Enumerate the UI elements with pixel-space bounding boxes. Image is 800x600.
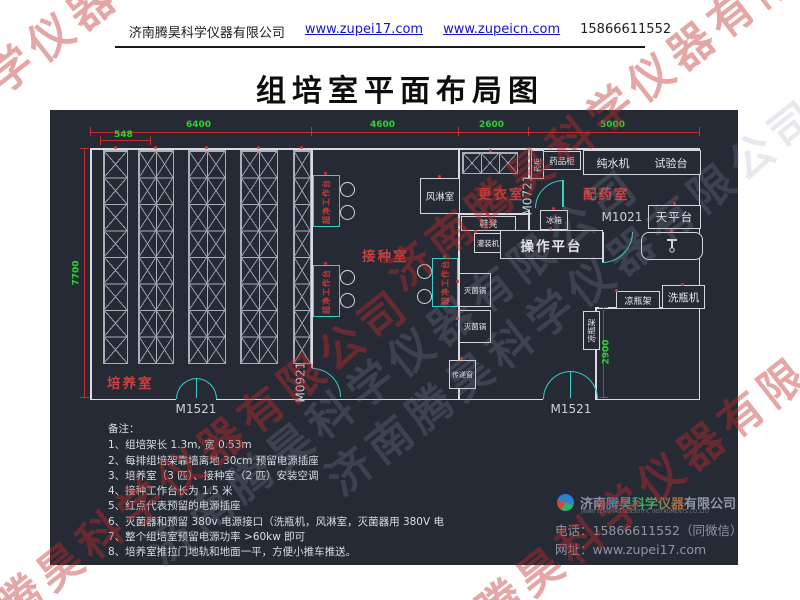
page-title: 组培室平面布局图 (0, 66, 800, 110)
door-code-m1521-right: M1521 (547, 402, 595, 416)
door-m1521-right-arc-a (543, 371, 571, 399)
sterilizer-box-1: 灭菌锅 (459, 273, 491, 307)
header-divider (115, 46, 645, 48)
clean-bench-label: 超净工作台 (321, 269, 332, 314)
door-code-m0921-label: M0921 (293, 362, 307, 403)
shoe-bench-label: 鞋凳 (479, 217, 497, 230)
door-code-m1521-left: M1521 (172, 402, 220, 416)
page: 济南腾昊科学仪器有限公司 www.zupei17.com www.zupeicn… (0, 0, 800, 600)
small-cabinet-label: 药柜 (533, 158, 543, 172)
medicine-cabinet-box: 药品柜 (543, 151, 581, 170)
air-shower-label: 风淋室 (426, 189, 455, 203)
culture-rack-2 (138, 150, 174, 364)
header-link-primary[interactable]: www.zupei17.com (305, 22, 423, 41)
header-link-secondary[interactable]: www.zupeicn.com (443, 22, 560, 41)
door-m0721-leaf (562, 180, 564, 207)
medicine-cabinet-label: 药品柜 (549, 155, 575, 167)
culture-rack-5 (293, 150, 311, 364)
door-code-m0721: M0721 (520, 172, 534, 218)
door-m1521-left-leaf (196, 378, 198, 398)
door-m1521-left-arc-a (176, 378, 197, 399)
note-item-4: 4、接种工作台长为 1.5 米 (108, 484, 444, 499)
dim-line-left (84, 148, 85, 398)
door-m1021-arc (602, 232, 633, 263)
note-item-1: 1、组培架长 1.3m, 宽 0.53m (108, 438, 444, 453)
brand-phone: 电话：15866611552（同微信） (555, 520, 742, 539)
brand-company-en: JINAN TENGHAO SCIENTIFIC INSTRUMENTS CO.… (581, 509, 709, 515)
wall-bottom-2 (216, 399, 543, 401)
stool (417, 264, 432, 279)
clean-bench-label: 超净工作台 (321, 179, 332, 224)
wall-changing-bottom (458, 213, 529, 215)
stool (340, 182, 355, 197)
water-purifier-label: 纯水机 (597, 155, 630, 171)
notes-block: 备注： 1、组培架长 1.3m, 宽 0.53m 2、每排组培架靠墙离地 30c… (108, 422, 444, 561)
stool (340, 270, 355, 285)
note-item-5: 5、红点代表预留的电源插座 (108, 499, 444, 514)
note-item-7: 7、整个组培室预留电源功率 >60kw 即可 (108, 530, 444, 545)
room-label-inoculation: 接种室 (362, 245, 409, 265)
door-m1521-right-arc-b (570, 371, 598, 399)
door-code-m0921: M0921 (293, 360, 307, 404)
operation-platform-label: 操作平台 (521, 235, 583, 255)
culture-rack-1 (103, 150, 128, 364)
stool (340, 293, 355, 308)
bottle-washer-box: 洗瓶机 (662, 285, 705, 309)
shoe-bench-box: 鞋凳 (461, 216, 516, 231)
stool (340, 205, 355, 220)
door-m0721-arc (535, 180, 564, 208)
dim-line-top (90, 132, 700, 133)
room-label-culture: 培养室 (107, 372, 154, 392)
door-m0921-arc (312, 368, 341, 397)
notes-heading: 备注： (108, 422, 444, 437)
culture-rack-3 (188, 150, 226, 364)
dim-7700: 7700 (72, 260, 82, 285)
door-code-m0721-label: M0721 (520, 175, 534, 216)
bottle-washer-label: 洗瓶机 (668, 290, 700, 305)
note-item-6: 6、灭菌器和预留 380v 电源接口（洗瓶机，风淋室，灭菌器用 380V 电 (108, 515, 444, 530)
fridge-box: 冰箱 (540, 210, 568, 230)
filling-machine-label: 灌装机 (477, 238, 500, 249)
dim-548: 548 (114, 130, 133, 140)
note-item-8: 8、培养室推拉门地轨和地面一平，方便小推车推送。 (108, 545, 444, 560)
bench-top-box: 纯水机 试验台 (583, 150, 701, 175)
dim-2600: 2600 (479, 120, 504, 130)
wall-left (90, 148, 92, 400)
clean-bench-3: 超净工作台 (432, 258, 458, 307)
stool (417, 289, 432, 304)
room-label-dispensing: 配药室 (583, 183, 630, 203)
locker-cabinet (462, 152, 518, 174)
sink-box (641, 232, 703, 260)
dim-2900: 2900 (602, 339, 612, 364)
balance-platform-label: 天平台 (656, 209, 694, 225)
door-m1521-right-leaf (570, 371, 572, 398)
wall-bottom-1 (90, 399, 176, 401)
bottle-rack-box-v: 凉瓶架 (583, 311, 600, 350)
door-code-m1021: M1021 (600, 210, 644, 224)
air-shower-box: 风淋室 (420, 178, 460, 214)
dim-5000: 5000 (600, 120, 625, 130)
clean-bench-2: 超净工作台 (313, 265, 340, 317)
fridge-label: 冰箱 (546, 215, 562, 226)
brand-website[interactable]: 网址：www.zupei17.com (555, 539, 706, 558)
sterilizer-label: 灭菌锅 (464, 285, 487, 296)
sterilizer-label: 灭菌锅 (464, 321, 487, 332)
bottle-rack-box-h: 凉瓶架 (616, 291, 660, 309)
clean-bench-label: 超净工作台 (440, 260, 451, 305)
floorplan-canvas: 超净工作台 超净工作台 超净工作台 风淋室 药柜 药品柜 纯水机 试验台 冰箱 … (50, 110, 738, 565)
header-company: 济南腾昊科学仪器有限公司 (129, 22, 285, 41)
dim-4600: 4600 (370, 120, 395, 130)
bottle-rack-label: 凉瓶架 (624, 294, 651, 307)
wall-right (699, 148, 701, 400)
test-bench-label: 试验台 (655, 155, 688, 171)
dim-6400: 6400 (186, 120, 211, 130)
company-logo-icon (557, 494, 574, 511)
clean-bench-1: 超净工作台 (313, 175, 340, 227)
note-item-2: 2、每排组培架靠墙离地 30cm 预留电源插座 (108, 454, 444, 469)
header: 济南腾昊科学仪器有限公司 www.zupei17.com www.zupeicn… (0, 22, 800, 41)
sterilizer-box-2: 灭菌锅 (459, 310, 491, 343)
operation-platform-box: 操作平台 (500, 230, 603, 259)
note-item-3: 3、培养室（3 匹）、接种室（2 匹）安装空调 (108, 469, 444, 484)
wall-bottom-3 (597, 399, 700, 401)
balance-platform-box: 天平台 (648, 205, 701, 229)
bottle-rack-label: 凉瓶架 (586, 319, 597, 343)
transfer-window-label: 传递窗 (452, 370, 473, 380)
filling-machine-box: 灌装机 (474, 233, 502, 253)
faucet-icon (662, 238, 682, 254)
room-label-changing: 更衣室 (478, 183, 525, 203)
door-m1521-left-arc-b (196, 378, 217, 399)
header-phone: 15866611552 (580, 22, 671, 41)
culture-rack-4 (240, 150, 278, 364)
transfer-window-box: 传递窗 (449, 360, 476, 389)
dim-line-rack-offset (100, 140, 150, 141)
